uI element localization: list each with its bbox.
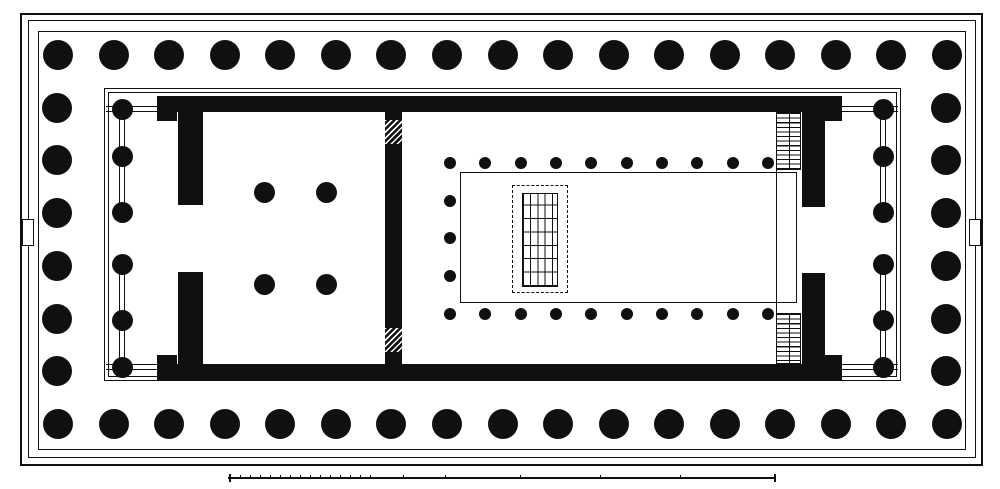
scale-bar-tick (340, 475, 341, 479)
peristyle-column (654, 40, 684, 70)
peristyle-column (43, 40, 73, 70)
scale-bar-tick (360, 475, 361, 479)
scale-bar-tick (280, 475, 281, 479)
peristyle-column (42, 251, 72, 281)
south-cella-wall (157, 364, 842, 380)
scale-bar-tick (680, 475, 681, 479)
cella-colonnade-column (444, 232, 456, 244)
cella-colonnade-column (444, 195, 456, 207)
west-chamber-column (316, 274, 337, 295)
west-crosswall-lower (178, 272, 203, 380)
peristyle-column (932, 40, 962, 70)
cella-colonnade-column (621, 308, 633, 320)
cella-colonnade-column (444, 270, 456, 282)
scale-bar-tick (260, 475, 261, 479)
peristyle-column (931, 304, 961, 334)
south-staircase-stringer (789, 313, 790, 364)
north-staircase-stringer (789, 112, 790, 170)
peristyle-column (321, 40, 351, 70)
peristyle-column (710, 409, 740, 439)
peristyle-column (488, 409, 518, 439)
cella-floor-outline (460, 172, 797, 303)
west-porch-column (112, 202, 133, 223)
west-side-tab (22, 219, 34, 246)
west-chamber-column (316, 182, 337, 203)
scale-bar-tick (310, 475, 311, 479)
west-porch-column (112, 146, 133, 167)
peristyle-column (932, 409, 962, 439)
peristyle-column (154, 40, 184, 70)
anta-northeast (822, 112, 842, 121)
scale-bar-tick (330, 475, 331, 479)
cella-colonnade-column (515, 308, 527, 320)
mid-wall-hatch-bottom (385, 328, 402, 352)
peristyle-column (99, 40, 129, 70)
peristyle-column (821, 409, 851, 439)
scale-bar-tick (403, 475, 404, 479)
cella-colonnade-column (762, 157, 774, 169)
mid-crosswall (385, 112, 402, 364)
west-chamber-column (254, 274, 275, 295)
peristyle-column (654, 409, 684, 439)
cella-colonnade-column (727, 308, 739, 320)
statue-base-pedestal-grid (522, 193, 558, 287)
peristyle-column (543, 409, 573, 439)
cella-colonnade-column (550, 308, 562, 320)
west-porch-column (112, 254, 133, 275)
peristyle-column (43, 409, 73, 439)
peristyle-column (432, 40, 462, 70)
scale-bar-tick (270, 475, 271, 479)
peristyle-column (154, 409, 184, 439)
peristyle-column (99, 409, 129, 439)
peristyle-column (710, 40, 740, 70)
peristyle-column (42, 93, 72, 123)
east-porch-column (873, 146, 894, 167)
peristyle-column (931, 93, 961, 123)
east-crosswall-lower (802, 273, 825, 364)
west-porch-column (112, 357, 133, 378)
scale-bar-tick (600, 475, 601, 479)
mid-wall-hatch-top (385, 120, 402, 144)
peristyle-column (42, 304, 72, 334)
scale-bar-tick (445, 475, 446, 479)
cella-colonnade-column (621, 157, 633, 169)
west-porch-column (112, 99, 133, 120)
east-porch-column (873, 99, 894, 120)
peristyle-column (543, 40, 573, 70)
peristyle-column (488, 40, 518, 70)
cella-colonnade-column (444, 157, 456, 169)
peristyle-column (42, 198, 72, 228)
scale-bar-tick (520, 475, 521, 479)
west-porch-column (112, 310, 133, 331)
cella-colonnade-column (727, 157, 739, 169)
peristyle-column (821, 40, 851, 70)
peristyle-column (432, 409, 462, 439)
anta-southwest (157, 355, 177, 364)
east-porch-column (873, 202, 894, 223)
cella-colonnade-column (762, 308, 774, 320)
west-crosswall-upper (178, 96, 203, 205)
scale-bar-tick (370, 475, 371, 479)
scale-bar-end (229, 474, 231, 482)
north-cella-wall (157, 96, 842, 112)
scale-bar-tick (300, 475, 301, 479)
east-side-tab (969, 219, 981, 246)
scale-bar-end (774, 474, 776, 482)
cella-colonnade-column (515, 157, 527, 169)
east-porch-column (873, 254, 894, 275)
peristyle-column (210, 40, 240, 70)
scale-bar-tick (290, 475, 291, 479)
scale-bar-tick (240, 475, 241, 479)
east-porch-column (873, 357, 894, 378)
parthenon-floor-plan (0, 0, 1000, 489)
peristyle-column (321, 409, 351, 439)
peristyle-column (210, 409, 240, 439)
cella-colonnade-column (656, 157, 668, 169)
scale-bar-tick (350, 475, 351, 479)
cella-colonnade-column (656, 308, 668, 320)
peristyle-column (599, 409, 629, 439)
scale-bar-tick (320, 475, 321, 479)
peristyle-column (931, 251, 961, 281)
peristyle-column (931, 198, 961, 228)
east-porch-column (873, 310, 894, 331)
peristyle-column (599, 40, 629, 70)
cella-colonnade-column (444, 308, 456, 320)
cella-colonnade-column (550, 157, 562, 169)
scale-bar-tick (250, 475, 251, 479)
east-crosswall-upper (802, 112, 825, 207)
west-chamber-column (254, 182, 275, 203)
anta-southeast (822, 355, 842, 364)
anta-northwest (157, 112, 177, 121)
